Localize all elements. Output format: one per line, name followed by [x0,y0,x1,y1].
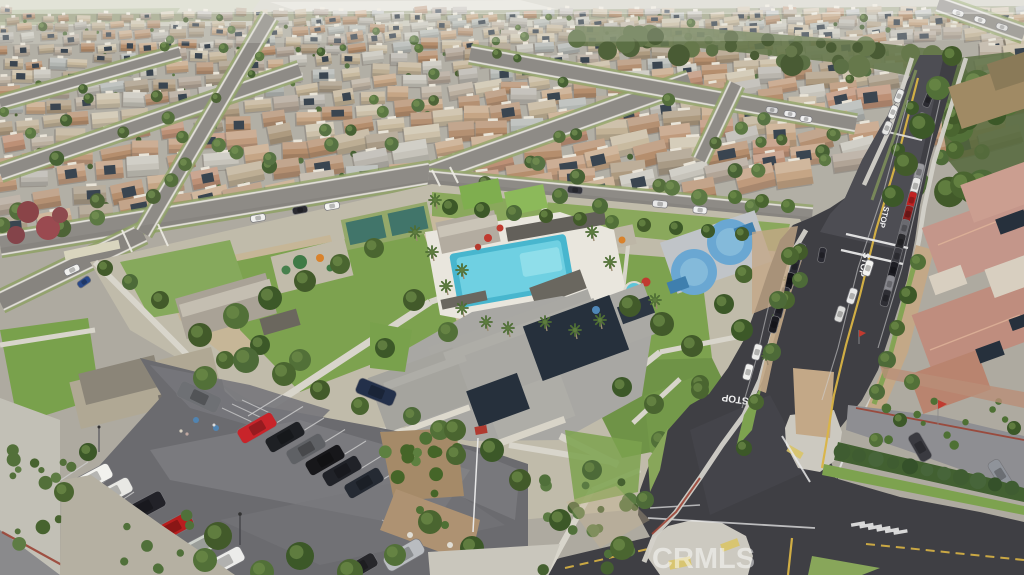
svg-text:CRMLS: CRMLS [652,543,755,575]
